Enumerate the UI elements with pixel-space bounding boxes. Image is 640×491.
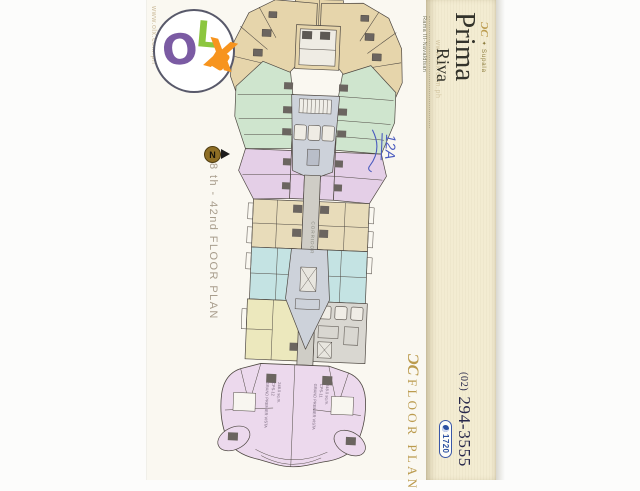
olx-url-watermark-right: www.olx.com.ph [434,40,441,98]
badge-1720: 1720 [439,420,452,458]
olx-logo: O L X [153,9,235,93]
project-subtitle: Rama III-Navaldisan [421,16,430,128]
phone-area-code: (02) [458,372,469,391]
compass-north-icon: N [204,146,221,163]
svg-text:CPS-11: CPS-11 [319,384,325,399]
phone-main: 294-3555 [455,396,474,467]
project-name-line1: Prima [452,12,478,144]
svg-text:248.0 sq.m.: 248.0 sq.m. [324,384,330,405]
developer-logo-icon: ƆC [403,354,421,375]
svg-text:CPS-12: CPS-12 [271,382,277,397]
brand-tagline: ✦ Supala [481,41,488,73]
handwritten-note-text: 12A [382,134,399,160]
badge-text: 1720 [441,434,450,453]
brand-block: ƆC ✦ Supala Prima Riva Rama III-Navaldis… [421,12,490,144]
floor-plan-caption: FLOOR PLAN [404,379,420,491]
badge-globe-icon [442,425,449,432]
page-edge-shadow [496,0,505,480]
compass-arrow-icon [221,149,230,159]
floor-range-label: 8 th - 42nd FLOOR PLAN [207,163,219,320]
phone-number: (02) 294-3555 [454,372,474,467]
svg-text:248.0 sq.m.: 248.0 sq.m. [276,382,282,403]
